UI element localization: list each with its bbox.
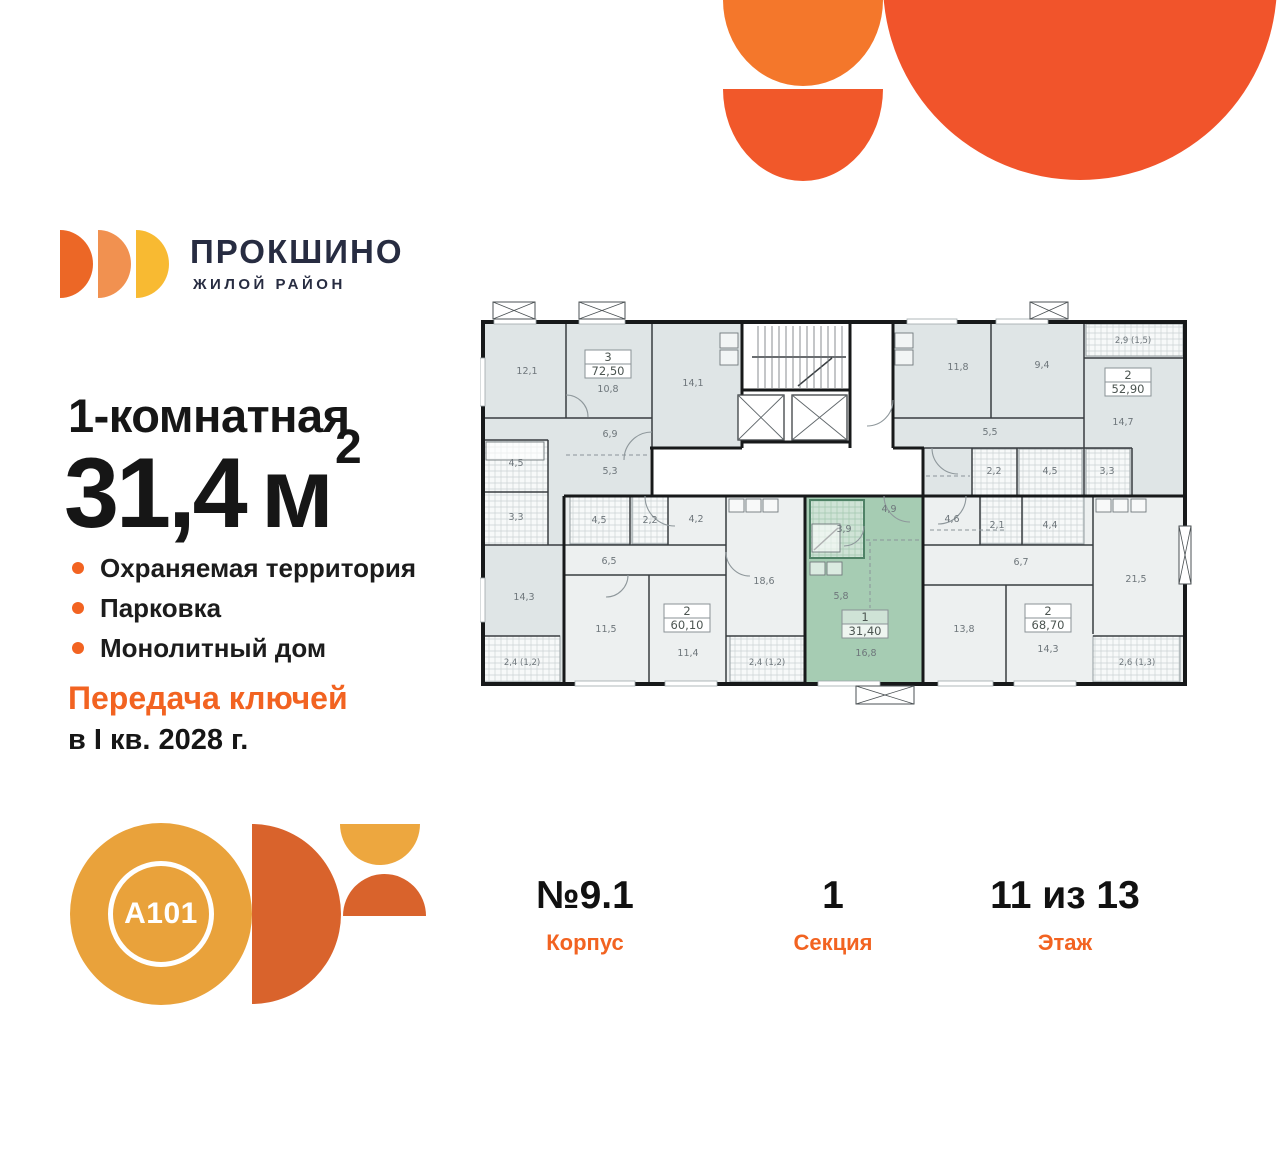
svg-text:2,2: 2,2: [986, 466, 1001, 477]
area-superscript: 2: [335, 421, 362, 474]
feature-label: Охраняемая территория: [100, 553, 416, 584]
feature-item: Охраняемая территория: [72, 548, 416, 588]
svg-text:21,5: 21,5: [1125, 574, 1146, 585]
sekcia-value: 1: [713, 874, 953, 918]
meta-sekcia: 1 Секция: [713, 874, 953, 956]
area-title: 31,4м2: [64, 436, 362, 550]
svg-text:4,4: 4,4: [1042, 520, 1057, 531]
a101-ring-label: A101: [108, 861, 214, 967]
a101-small-top-icon: [340, 824, 420, 865]
brand-tagline: ЖИЛОЙ РАЙОН: [193, 276, 346, 293]
feature-item: Монолитный дом: [72, 628, 416, 668]
svg-text:4,2: 4,2: [688, 514, 703, 525]
decor-halfdisc-bottom-icon: [723, 89, 883, 181]
svg-text:2,9 (1,5): 2,9 (1,5): [1115, 336, 1151, 346]
feature-item: Парковка: [72, 588, 416, 628]
svg-text:14,3: 14,3: [513, 592, 534, 603]
bullet-icon: [72, 642, 84, 654]
svg-text:11,8: 11,8: [947, 362, 968, 373]
svg-text:2,6 (1,3): 2,6 (1,3): [1119, 658, 1155, 668]
svg-text:11,5: 11,5: [595, 624, 616, 635]
handover-line-1: Передача ключей: [68, 680, 348, 717]
svg-text:6,5: 6,5: [601, 556, 616, 567]
brand-petal-icon: [136, 230, 169, 298]
svg-text:4,9: 4,9: [881, 504, 896, 515]
svg-text:72,50: 72,50: [592, 364, 625, 378]
svg-text:16,8: 16,8: [855, 648, 876, 659]
brand-petal-icon: [60, 230, 93, 298]
korpus-label: Корпус: [465, 930, 705, 956]
etazh-value: 11 из 13: [945, 874, 1185, 918]
svg-text:9,4: 9,4: [1034, 360, 1049, 371]
svg-text:4,5: 4,5: [1042, 466, 1057, 477]
handover-line-2: в I кв. 2028 г.: [68, 724, 248, 757]
svg-text:13,8: 13,8: [953, 624, 974, 635]
svg-text:5,8: 5,8: [833, 591, 848, 602]
floorplan-svg: 12,110,814,16,95,34,53,314,32,4 (1,2)4,5…: [480, 300, 1195, 718]
svg-text:11,4: 11,4: [677, 648, 698, 659]
area-unit: м: [261, 437, 331, 548]
svg-text:4,6: 4,6: [944, 514, 959, 525]
etazh-label: Этаж: [945, 930, 1185, 956]
svg-text:18,6: 18,6: [753, 576, 774, 587]
svg-text:4,5: 4,5: [591, 515, 606, 526]
svg-text:12,1: 12,1: [516, 366, 537, 377]
bullet-icon: [72, 602, 84, 614]
svg-text:3,3: 3,3: [1099, 466, 1114, 477]
svg-text:2,2: 2,2: [642, 515, 657, 526]
svg-text:2: 2: [1044, 604, 1051, 618]
svg-text:14,1: 14,1: [682, 378, 703, 389]
svg-text:10,8: 10,8: [597, 384, 618, 395]
bullet-icon: [72, 562, 84, 574]
meta-korpus: №9.1 Корпус: [465, 874, 705, 956]
svg-text:14,3: 14,3: [1037, 644, 1058, 655]
svg-text:52,90: 52,90: [1112, 382, 1145, 396]
feature-list: Охраняемая территория Парковка Монолитны…: [72, 548, 416, 668]
svg-text:2,4 (1,2): 2,4 (1,2): [504, 658, 540, 668]
svg-text:14,7: 14,7: [1112, 417, 1133, 428]
svg-text:2: 2: [1124, 368, 1131, 382]
feature-label: Парковка: [100, 593, 221, 624]
promo-card: ПРОКШИНО ЖИЛОЙ РАЙОН 1-комнатная 31,4м2 …: [0, 0, 1280, 1160]
feature-label: Монолитный дом: [100, 633, 326, 664]
svg-text:60,10: 60,10: [671, 618, 704, 632]
decor-circle-icon: [883, 0, 1277, 180]
brand-petal-icon: [98, 230, 131, 298]
svg-text:68,70: 68,70: [1032, 618, 1065, 632]
svg-text:3,9: 3,9: [836, 524, 851, 535]
a101-halfdisc-icon: [252, 824, 341, 1004]
svg-text:2,4 (1,2): 2,4 (1,2): [749, 658, 785, 668]
area-value: 31,4: [64, 437, 245, 548]
a101-small-bottom-icon: [343, 874, 426, 916]
korpus-value: №9.1: [465, 874, 705, 918]
decor-halfdisc-top-icon: [723, 0, 883, 86]
svg-text:2: 2: [683, 604, 690, 618]
floorplan: 12,110,814,16,95,34,53,314,32,4 (1,2)4,5…: [480, 300, 1195, 723]
svg-text:5,5: 5,5: [982, 427, 997, 438]
brand-name: ПРОКШИНО: [190, 233, 403, 271]
svg-text:3: 3: [604, 350, 611, 364]
svg-text:6,9: 6,9: [602, 429, 617, 440]
rooms-title: 1-комнатная: [68, 388, 350, 443]
svg-text:1: 1: [861, 610, 868, 624]
a101-circle-icon: A101: [70, 823, 252, 1005]
svg-text:5,3: 5,3: [602, 466, 617, 477]
svg-text:31,40: 31,40: [849, 624, 882, 638]
sekcia-label: Секция: [713, 930, 953, 956]
svg-text:6,7: 6,7: [1013, 557, 1028, 568]
svg-text:3,3: 3,3: [508, 512, 523, 523]
svg-text:2,1: 2,1: [989, 520, 1004, 531]
svg-text:4,5: 4,5: [508, 458, 523, 469]
meta-etazh: 11 из 13 Этаж: [945, 874, 1185, 956]
